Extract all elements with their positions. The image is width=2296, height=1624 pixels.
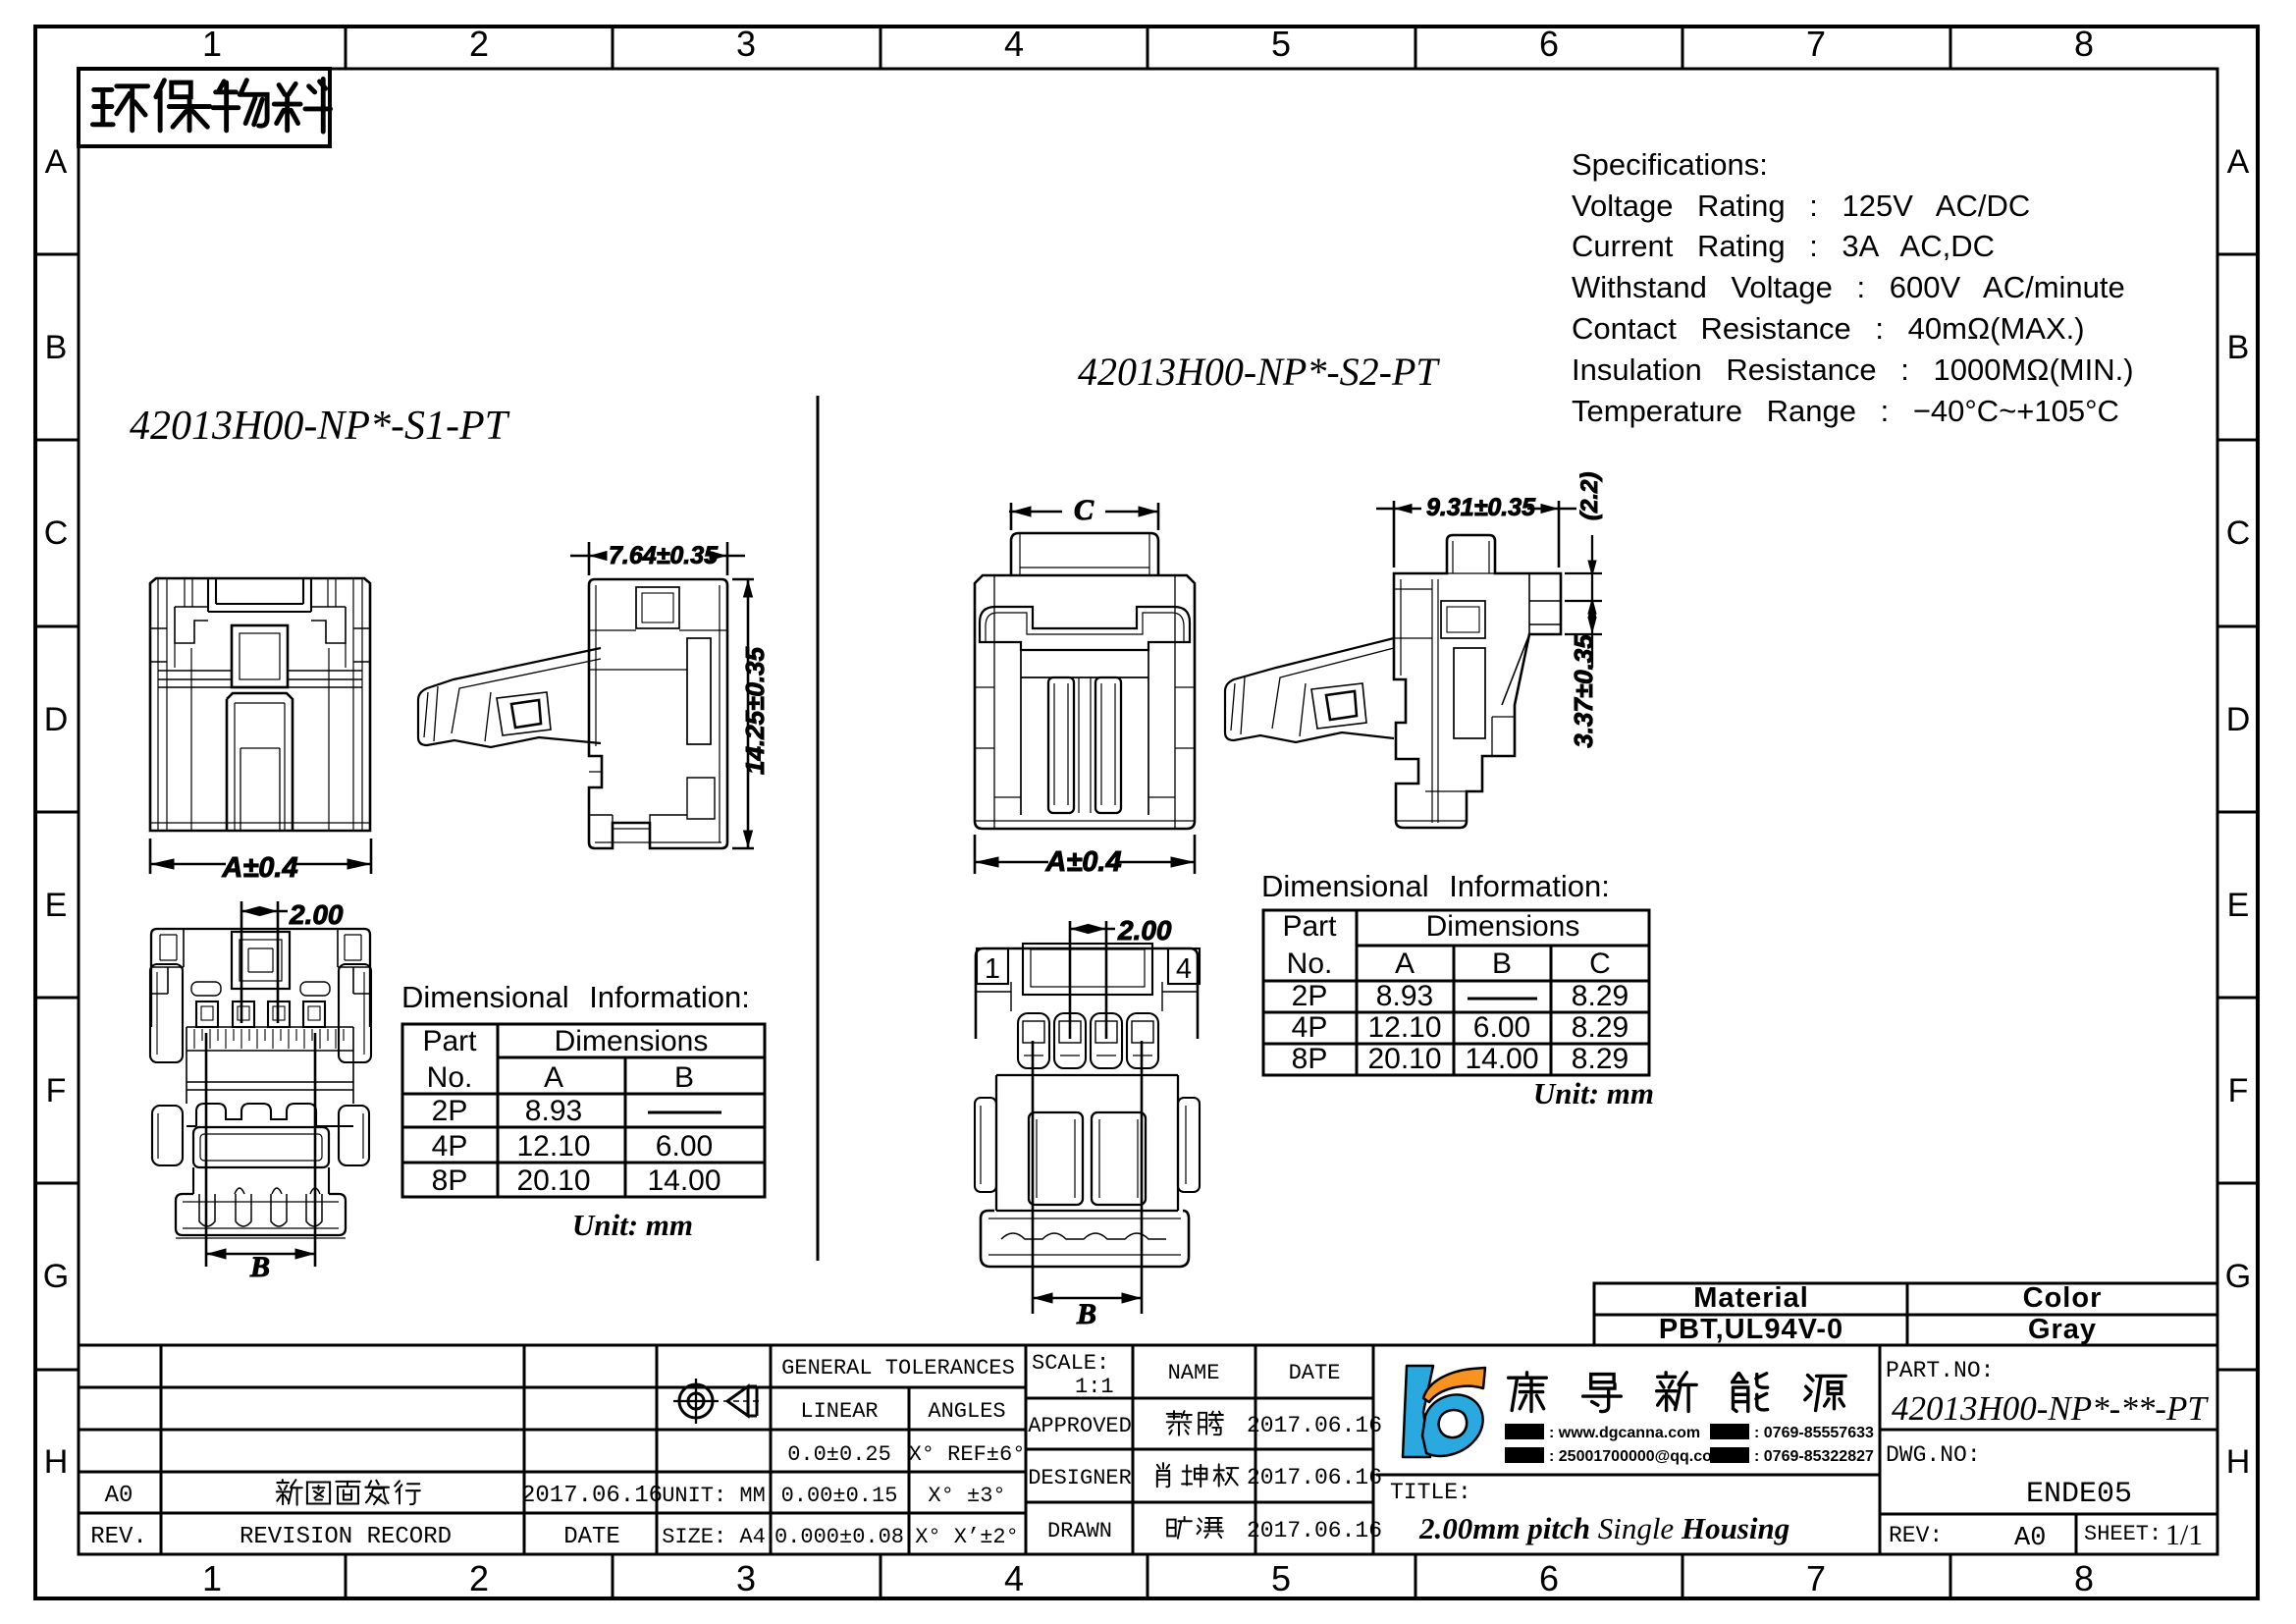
svg-text:1: 1 bbox=[985, 953, 1000, 985]
svg-text:Unit: mm: Unit: mm bbox=[1533, 1076, 1654, 1110]
svg-text:B: B bbox=[45, 329, 68, 366]
svg-text:C: C bbox=[1074, 494, 1095, 526]
svg-text:PART.NO:: PART.NO: bbox=[1886, 1358, 1994, 1383]
svg-text:9.31±0.35: 9.31±0.35 bbox=[1426, 494, 1536, 521]
svg-text:H: H bbox=[2226, 1443, 2251, 1481]
svg-text:Part: Part bbox=[1282, 910, 1337, 943]
svg-text:5: 5 bbox=[1271, 1558, 1291, 1598]
svg-text:8.29: 8.29 bbox=[1572, 1011, 1629, 1044]
svg-text:G: G bbox=[2225, 1258, 2251, 1295]
svg-text:NAME: NAME bbox=[1168, 1361, 1220, 1385]
svg-text:Temperature Range : −40°C~+105: Temperature Range : −40°C~+105°C bbox=[1572, 394, 2119, 428]
svg-text:7: 7 bbox=[1806, 24, 1826, 64]
svg-text:14.00: 14.00 bbox=[1465, 1043, 1538, 1075]
svg-text:1: 1 bbox=[202, 24, 222, 64]
svg-text:C: C bbox=[2226, 514, 2251, 552]
svg-text:: 0769-85322827: : 0769-85322827 bbox=[1754, 1448, 1874, 1465]
svg-text:2.00mm pitch Single Housing: 2.00mm pitch Single Housing bbox=[1418, 1511, 1789, 1545]
svg-text:2017.06.16: 2017.06.16 bbox=[521, 1483, 663, 1509]
svg-text:SCALE:: SCALE: bbox=[1032, 1351, 1109, 1376]
svg-text:0.000±0.08: 0.000±0.08 bbox=[774, 1525, 904, 1549]
svg-text:SIZE: A4: SIZE: A4 bbox=[662, 1525, 766, 1549]
svg-text:B: B bbox=[2227, 329, 2250, 366]
svg-text:8.93: 8.93 bbox=[1376, 980, 1433, 1012]
svg-text:Part: Part bbox=[422, 1025, 477, 1057]
svg-text:8.29: 8.29 bbox=[1572, 1043, 1629, 1075]
svg-text:B: B bbox=[1076, 1298, 1096, 1330]
svg-text:A0: A0 bbox=[105, 1483, 133, 1509]
svg-text:4: 4 bbox=[1176, 953, 1192, 985]
svg-text:UNIT: MM: UNIT: MM bbox=[662, 1484, 766, 1508]
svg-text:C: C bbox=[44, 514, 69, 552]
svg-text:A: A bbox=[544, 1061, 563, 1094]
svg-text:2017.06.16: 2017.06.16 bbox=[1247, 1518, 1382, 1543]
svg-text:8.29: 8.29 bbox=[1572, 980, 1629, 1012]
svg-text:DRAWN: DRAWN bbox=[1047, 1519, 1112, 1543]
svg-text:1/1: 1/1 bbox=[2165, 1519, 2203, 1551]
svg-text:2.00: 2.00 bbox=[1117, 915, 1172, 946]
svg-text:Specifications:: Specifications: bbox=[1572, 147, 1768, 182]
svg-text:Contact Resistance : 40mΩ(MAX.: Contact Resistance : 40mΩ(MAX.) bbox=[1572, 311, 2085, 346]
svg-text:2: 2 bbox=[469, 24, 489, 64]
svg-text:H: H bbox=[44, 1443, 69, 1481]
svg-text:2017.06.16: 2017.06.16 bbox=[1247, 1413, 1382, 1438]
svg-text:Gray: Gray bbox=[2028, 1314, 2097, 1345]
svg-text:Withstand Voltage : 600V AC/mi: Withstand Voltage : 600V AC/minute bbox=[1572, 270, 2125, 304]
svg-text:: 0769-85557633: : 0769-85557633 bbox=[1754, 1425, 1874, 1441]
svg-text:Dimensions: Dimensions bbox=[555, 1025, 709, 1057]
svg-text:Voltage Rating : 125V AC/DC: Voltage Rating : 125V AC/DC bbox=[1572, 189, 2030, 223]
svg-text:3.37±0.35: 3.37±0.35 bbox=[1569, 634, 1598, 748]
svg-text:Color: Color bbox=[2023, 1282, 2103, 1314]
svg-text:SHEET:: SHEET: bbox=[2084, 1522, 2162, 1546]
svg-text:6: 6 bbox=[1539, 24, 1559, 64]
svg-text:A±0.4: A±0.4 bbox=[221, 852, 297, 884]
svg-text:E: E bbox=[45, 887, 68, 924]
svg-text:4P: 4P bbox=[432, 1130, 468, 1163]
svg-text:8.93: 8.93 bbox=[525, 1095, 582, 1127]
svg-text:4: 4 bbox=[1004, 1558, 1024, 1598]
svg-text:B: B bbox=[1492, 947, 1512, 980]
svg-text:14.25±0.35: 14.25±0.35 bbox=[740, 646, 770, 774]
svg-text:B: B bbox=[674, 1061, 694, 1094]
svg-text:2P: 2P bbox=[432, 1095, 468, 1127]
svg-text:: www.dgcanna.com: : www.dgcanna.com bbox=[1549, 1425, 1700, 1441]
svg-text:4: 4 bbox=[1004, 24, 1024, 64]
svg-text:No.: No. bbox=[1287, 947, 1333, 980]
svg-text:Unit: mm: Unit: mm bbox=[572, 1208, 693, 1242]
svg-text:42013H00-NP*-**-PT: 42013H00-NP*-**-PT bbox=[1892, 1389, 2209, 1428]
svg-text:8: 8 bbox=[2074, 24, 2094, 64]
svg-text:REV:: REV: bbox=[1889, 1523, 1943, 1548]
svg-text:G: G bbox=[43, 1258, 69, 1295]
svg-text:42013H00-NP*-S1-PT: 42013H00-NP*-S1-PT bbox=[130, 404, 510, 449]
svg-text:0.0±0.25: 0.0±0.25 bbox=[787, 1442, 891, 1467]
svg-text:X° ±3°: X° ±3° bbox=[928, 1484, 1005, 1508]
svg-text:X° REF±6°: X° REF±6° bbox=[909, 1442, 1026, 1467]
svg-text:(2.2): (2.2) bbox=[1576, 472, 1603, 520]
svg-text:8P: 8P bbox=[432, 1164, 468, 1197]
svg-text:A: A bbox=[1395, 947, 1415, 980]
svg-text:A±0.4: A±0.4 bbox=[1044, 846, 1121, 878]
svg-text:Material: Material bbox=[1693, 1282, 1809, 1314]
svg-text:2017.06.16: 2017.06.16 bbox=[1247, 1465, 1382, 1490]
svg-text:2: 2 bbox=[469, 1558, 489, 1598]
svg-text:C: C bbox=[1589, 947, 1611, 980]
svg-text:1:1: 1:1 bbox=[1075, 1375, 1114, 1399]
svg-text:6: 6 bbox=[1539, 1558, 1559, 1598]
svg-text:42013H00-NP*-S2-PT: 42013H00-NP*-S2-PT bbox=[1078, 350, 1440, 394]
svg-text:Dimensional Information:: Dimensional Information: bbox=[1261, 869, 1610, 903]
svg-text:20.10: 20.10 bbox=[1367, 1043, 1441, 1075]
svg-text:B: B bbox=[249, 1251, 270, 1283]
svg-text:A0: A0 bbox=[2014, 1524, 2046, 1553]
svg-text:LINEAR: LINEAR bbox=[800, 1399, 878, 1424]
svg-text:DWG.NO:: DWG.NO: bbox=[1886, 1442, 1981, 1468]
svg-text:REV.: REV. bbox=[90, 1524, 147, 1550]
svg-text:ENDE05: ENDE05 bbox=[2026, 1478, 2132, 1511]
svg-text:E: E bbox=[2227, 887, 2250, 924]
svg-text:No.: No. bbox=[427, 1061, 473, 1094]
svg-text:6.00: 6.00 bbox=[656, 1130, 713, 1163]
svg-text:8: 8 bbox=[2074, 1558, 2094, 1598]
svg-text:12.10: 12.10 bbox=[516, 1130, 590, 1163]
svg-text:8P: 8P bbox=[1292, 1043, 1328, 1075]
svg-text:ANGLES: ANGLES bbox=[928, 1399, 1005, 1424]
svg-text:X° X’±2°: X° X’±2° bbox=[915, 1525, 1019, 1549]
svg-text:DATE: DATE bbox=[1289, 1361, 1341, 1385]
svg-text:4P: 4P bbox=[1292, 1011, 1328, 1044]
svg-text:2P: 2P bbox=[1292, 980, 1328, 1012]
svg-text:APPROVED: APPROVED bbox=[1028, 1414, 1132, 1438]
svg-text:F: F bbox=[46, 1072, 67, 1110]
svg-text:D: D bbox=[44, 701, 69, 738]
svg-text:Dimensional Information:: Dimensional Information: bbox=[401, 980, 750, 1014]
svg-text:Dimensions: Dimensions bbox=[1426, 910, 1580, 943]
svg-text:12.10: 12.10 bbox=[1367, 1011, 1441, 1044]
svg-text:2.00: 2.00 bbox=[289, 899, 344, 930]
svg-text:5: 5 bbox=[1271, 24, 1291, 64]
svg-text:TITLE:: TITLE: bbox=[1390, 1480, 1471, 1505]
svg-text:3: 3 bbox=[736, 1558, 756, 1598]
svg-text:7: 7 bbox=[1806, 1558, 1826, 1598]
svg-text:0.00±0.15: 0.00±0.15 bbox=[781, 1484, 898, 1508]
svg-text:REVISION RECORD: REVISION RECORD bbox=[240, 1524, 452, 1550]
svg-text:Insulation Resistance : 1000MΩ: Insulation Resistance : 1000MΩ(MIN.) bbox=[1572, 352, 2134, 387]
svg-text:14.00: 14.00 bbox=[647, 1164, 721, 1197]
svg-text:PBT,UL94V-0: PBT,UL94V-0 bbox=[1659, 1314, 1843, 1345]
svg-text:F: F bbox=[2228, 1072, 2249, 1110]
svg-text:: 25001700000@qq.com: : 25001700000@qq.com bbox=[1549, 1448, 1726, 1465]
svg-text:GENERAL TOLERANCES: GENERAL TOLERANCES bbox=[781, 1356, 1015, 1380]
svg-text:6.00: 6.00 bbox=[1473, 1011, 1530, 1044]
svg-text:DESIGNER: DESIGNER bbox=[1028, 1466, 1132, 1490]
svg-text:3: 3 bbox=[736, 24, 756, 64]
svg-text:20.10: 20.10 bbox=[516, 1164, 590, 1197]
svg-text:A: A bbox=[2227, 143, 2250, 181]
svg-text:A: A bbox=[45, 143, 68, 181]
svg-text:7.64±0.35: 7.64±0.35 bbox=[609, 542, 719, 569]
svg-text:D: D bbox=[2226, 701, 2251, 738]
svg-text:1: 1 bbox=[202, 1558, 222, 1598]
svg-text:DATE: DATE bbox=[563, 1524, 620, 1550]
svg-text:Current Rating : 3A AC,DC: Current Rating : 3A AC,DC bbox=[1572, 229, 1995, 263]
